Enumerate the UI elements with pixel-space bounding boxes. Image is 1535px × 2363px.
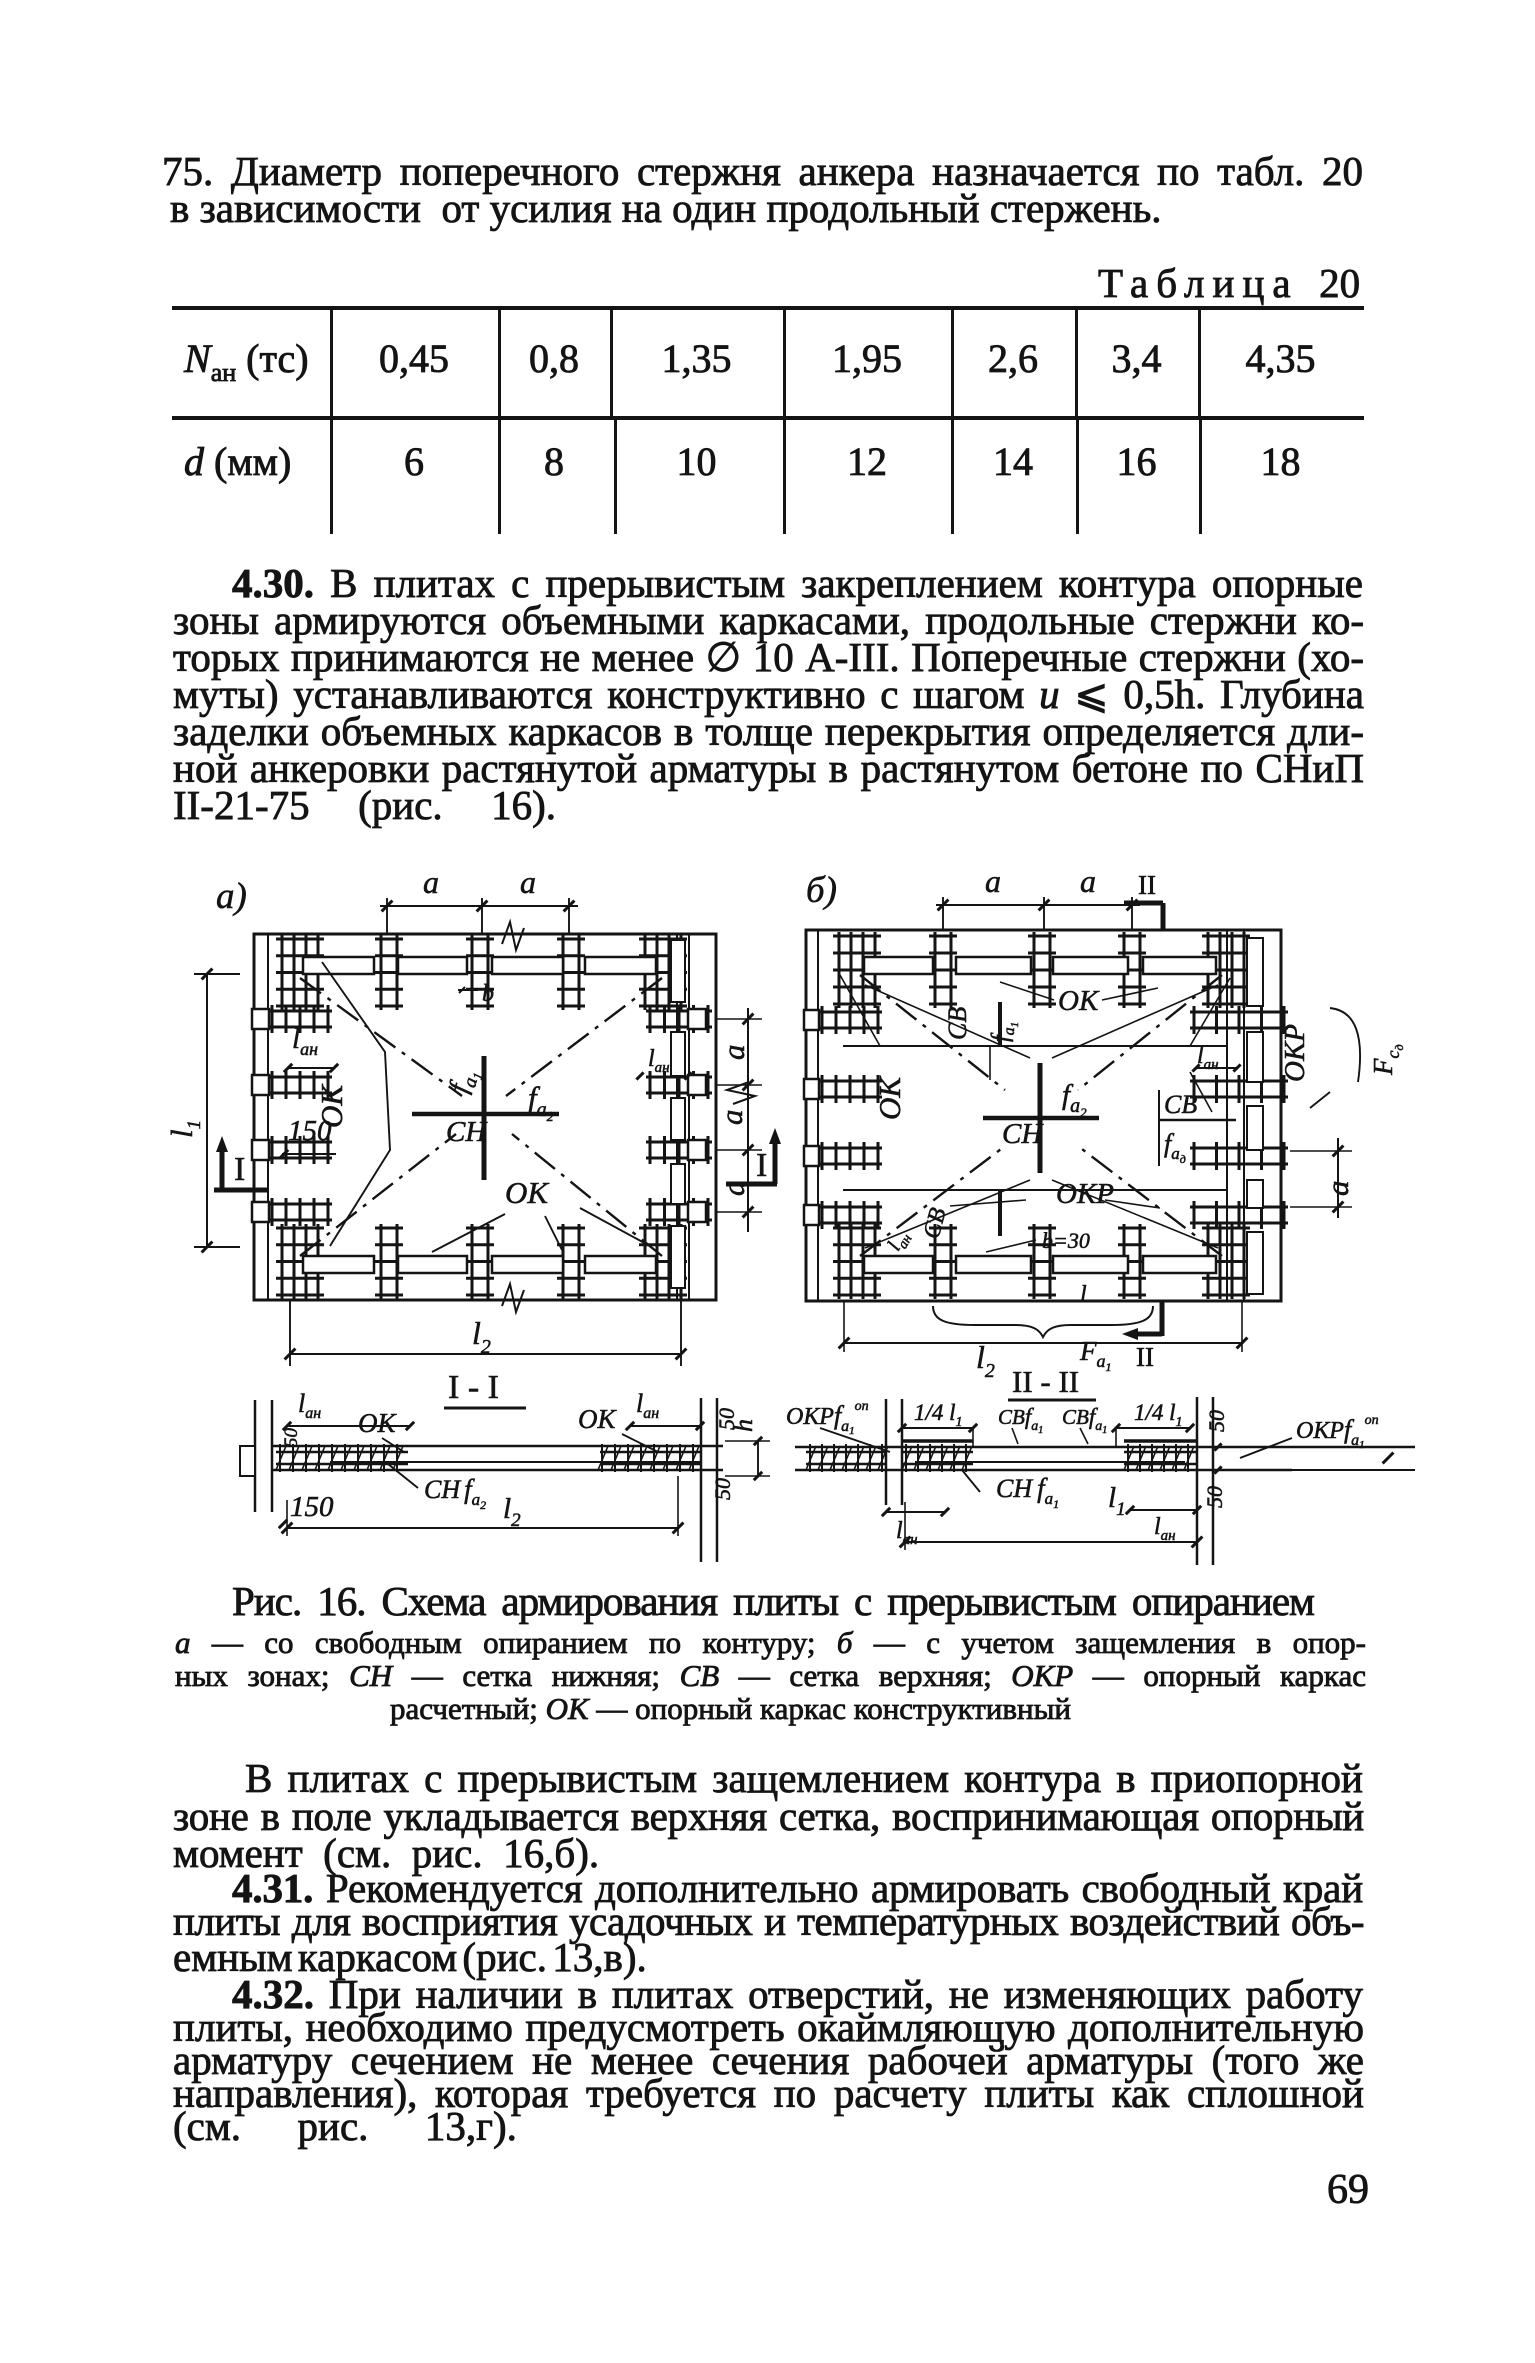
svg-text:СВfа1: СВfа1	[998, 1404, 1043, 1436]
svg-text:СВ: СВ	[943, 1007, 972, 1040]
svg-text:II: II	[1138, 870, 1156, 900]
svg-text:h: h	[729, 1419, 758, 1432]
svg-text:l2: l2	[472, 1315, 491, 1358]
svg-text:l2: l2	[976, 1339, 995, 1382]
svg-text:а: а	[520, 864, 536, 900]
svg-text:lан: lан	[1154, 1514, 1176, 1544]
svg-text:I: I	[234, 1151, 245, 1188]
svg-text:а: а	[716, 1045, 751, 1061]
svg-text:II: II	[1136, 1342, 1154, 1372]
svg-text:а: а	[423, 864, 439, 900]
svg-text:ОК: ОК	[358, 1408, 397, 1438]
svg-text:ОКР: ОКР	[1056, 1178, 1114, 1210]
svg-text:ОК: ОК	[505, 1175, 550, 1210]
svg-text:Fа1: Fа1	[1079, 1336, 1112, 1374]
svg-text:а: а	[1080, 863, 1096, 899]
svg-text:lан: lан	[298, 1389, 321, 1422]
svg-text:СНfа2: СНfа2	[424, 1474, 486, 1512]
svg-text:ОК: ОК	[578, 1404, 617, 1434]
svg-text:l: l	[1080, 1282, 1087, 1308]
svg-text:lан: lан	[883, 1227, 915, 1257]
svg-text:ОК: ОК	[872, 1075, 907, 1120]
svg-text:50: 50	[710, 1478, 735, 1500]
svg-text:l1: l1	[1108, 1482, 1126, 1520]
svg-text:I - I: I - I	[448, 1369, 499, 1406]
svg-text:fа1: fа1	[988, 1022, 1021, 1042]
svg-text:СН: СН	[1002, 1118, 1044, 1150]
svg-text:1/4 l1: 1/4 l1	[1134, 1400, 1183, 1430]
svg-text:а: а	[1320, 1181, 1355, 1197]
svg-text:50: 50	[281, 1428, 302, 1448]
svg-text:СН: СН	[446, 1116, 488, 1148]
svg-text:lан: lан	[896, 1518, 918, 1548]
svg-text:СВfа1: СВfа1	[1062, 1404, 1107, 1436]
svg-text:150: 150	[290, 1491, 334, 1523]
svg-text:ОКРfа1оп: ОКРfа1оп	[1296, 1413, 1379, 1451]
svg-text:l2: l2	[503, 1493, 521, 1531]
svg-text:150: 150	[288, 1115, 332, 1147]
svg-text:Fсд: Fсд	[1368, 1044, 1406, 1076]
svg-text:а): а)	[216, 876, 247, 917]
svg-text:СНfа1: СНfа1	[996, 1473, 1059, 1511]
svg-text:СВ: СВ	[919, 1205, 952, 1242]
svg-text:l1: l1	[164, 1120, 205, 1138]
svg-text:fa1: fa1	[443, 1065, 486, 1098]
svg-text:50: 50	[1204, 1410, 1229, 1432]
svg-text:lан: lан	[636, 1389, 659, 1422]
svg-text:а: а	[714, 1110, 749, 1126]
svg-text:lан: lан	[648, 1046, 670, 1076]
svg-text:b=30: b=30	[1042, 1228, 1090, 1253]
svg-text:50: 50	[1202, 1486, 1227, 1508]
svg-text:а: а	[716, 1181, 751, 1197]
svg-text:1/4 l1: 1/4 l1	[914, 1400, 963, 1430]
svg-text:fа2: fа2	[1062, 1079, 1087, 1120]
svg-text:II - II: II - II	[1012, 1364, 1079, 1399]
svg-text:fа2: fа2	[528, 1080, 554, 1125]
svg-text:ОКР: ОКР	[1279, 1024, 1311, 1082]
svg-text:б): б)	[806, 870, 837, 911]
svg-text:I: I	[756, 1147, 767, 1184]
svg-text:fад: fад	[1164, 1129, 1186, 1166]
svg-text:b: b	[482, 981, 494, 1007]
svg-text:ОК: ОК	[1058, 985, 1100, 1017]
svg-text:СВ: СВ	[1164, 1090, 1197, 1119]
svg-text:а: а	[985, 863, 1001, 899]
